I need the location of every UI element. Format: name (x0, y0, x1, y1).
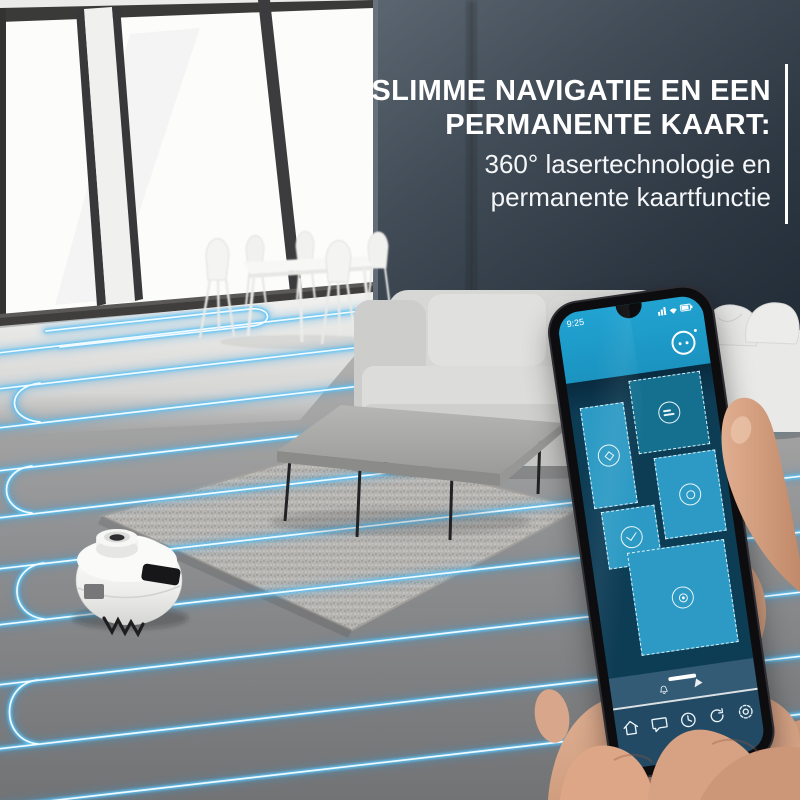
refresh-icon[interactable] (706, 704, 729, 727)
schedule-icon[interactable] (677, 709, 700, 732)
product-marketing-image: SLIMME NAVIGATIE EN EEN PERMANENTE KAART… (0, 0, 800, 800)
status-time: 9:25 (566, 317, 585, 329)
chat-icon[interactable] (648, 713, 671, 736)
drag-handle[interactable] (668, 673, 696, 681)
map-zone-2[interactable] (628, 371, 710, 455)
target-zone-icon (670, 585, 695, 610)
settings-icon[interactable] (735, 700, 758, 723)
check-zone-icon (619, 525, 644, 550)
map-zone-5[interactable] (627, 539, 739, 656)
diamond-zone-icon (596, 443, 621, 468)
bed-zone-icon (657, 400, 682, 425)
cleaning-map[interactable] (566, 363, 753, 679)
wifi-icon (670, 308, 678, 314)
robot-avatar-icon[interactable] (670, 329, 697, 356)
ring-zone-icon (678, 482, 703, 507)
notification-bell-icon[interactable] (657, 683, 671, 697)
status-icons (657, 301, 694, 316)
map-zone-1[interactable] (580, 402, 638, 509)
cursor-arrow-icon (694, 679, 702, 689)
home-icon[interactable] (619, 717, 642, 740)
map-zone-3[interactable] (654, 449, 727, 539)
battery-icon (680, 304, 693, 312)
cellular-signal-icon (657, 307, 666, 316)
